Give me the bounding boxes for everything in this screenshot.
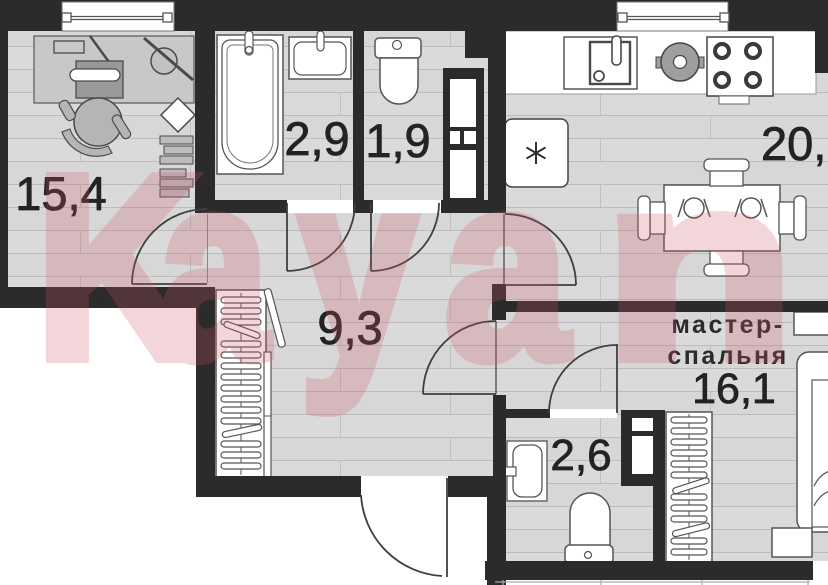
svg-text:a: a [445, 123, 570, 413]
svg-text:y: y [300, 122, 416, 412]
svg-text:n: n [604, 122, 795, 413]
svg-text:2,6: 2,6 [550, 431, 611, 480]
svg-text:a: a [160, 122, 270, 413]
